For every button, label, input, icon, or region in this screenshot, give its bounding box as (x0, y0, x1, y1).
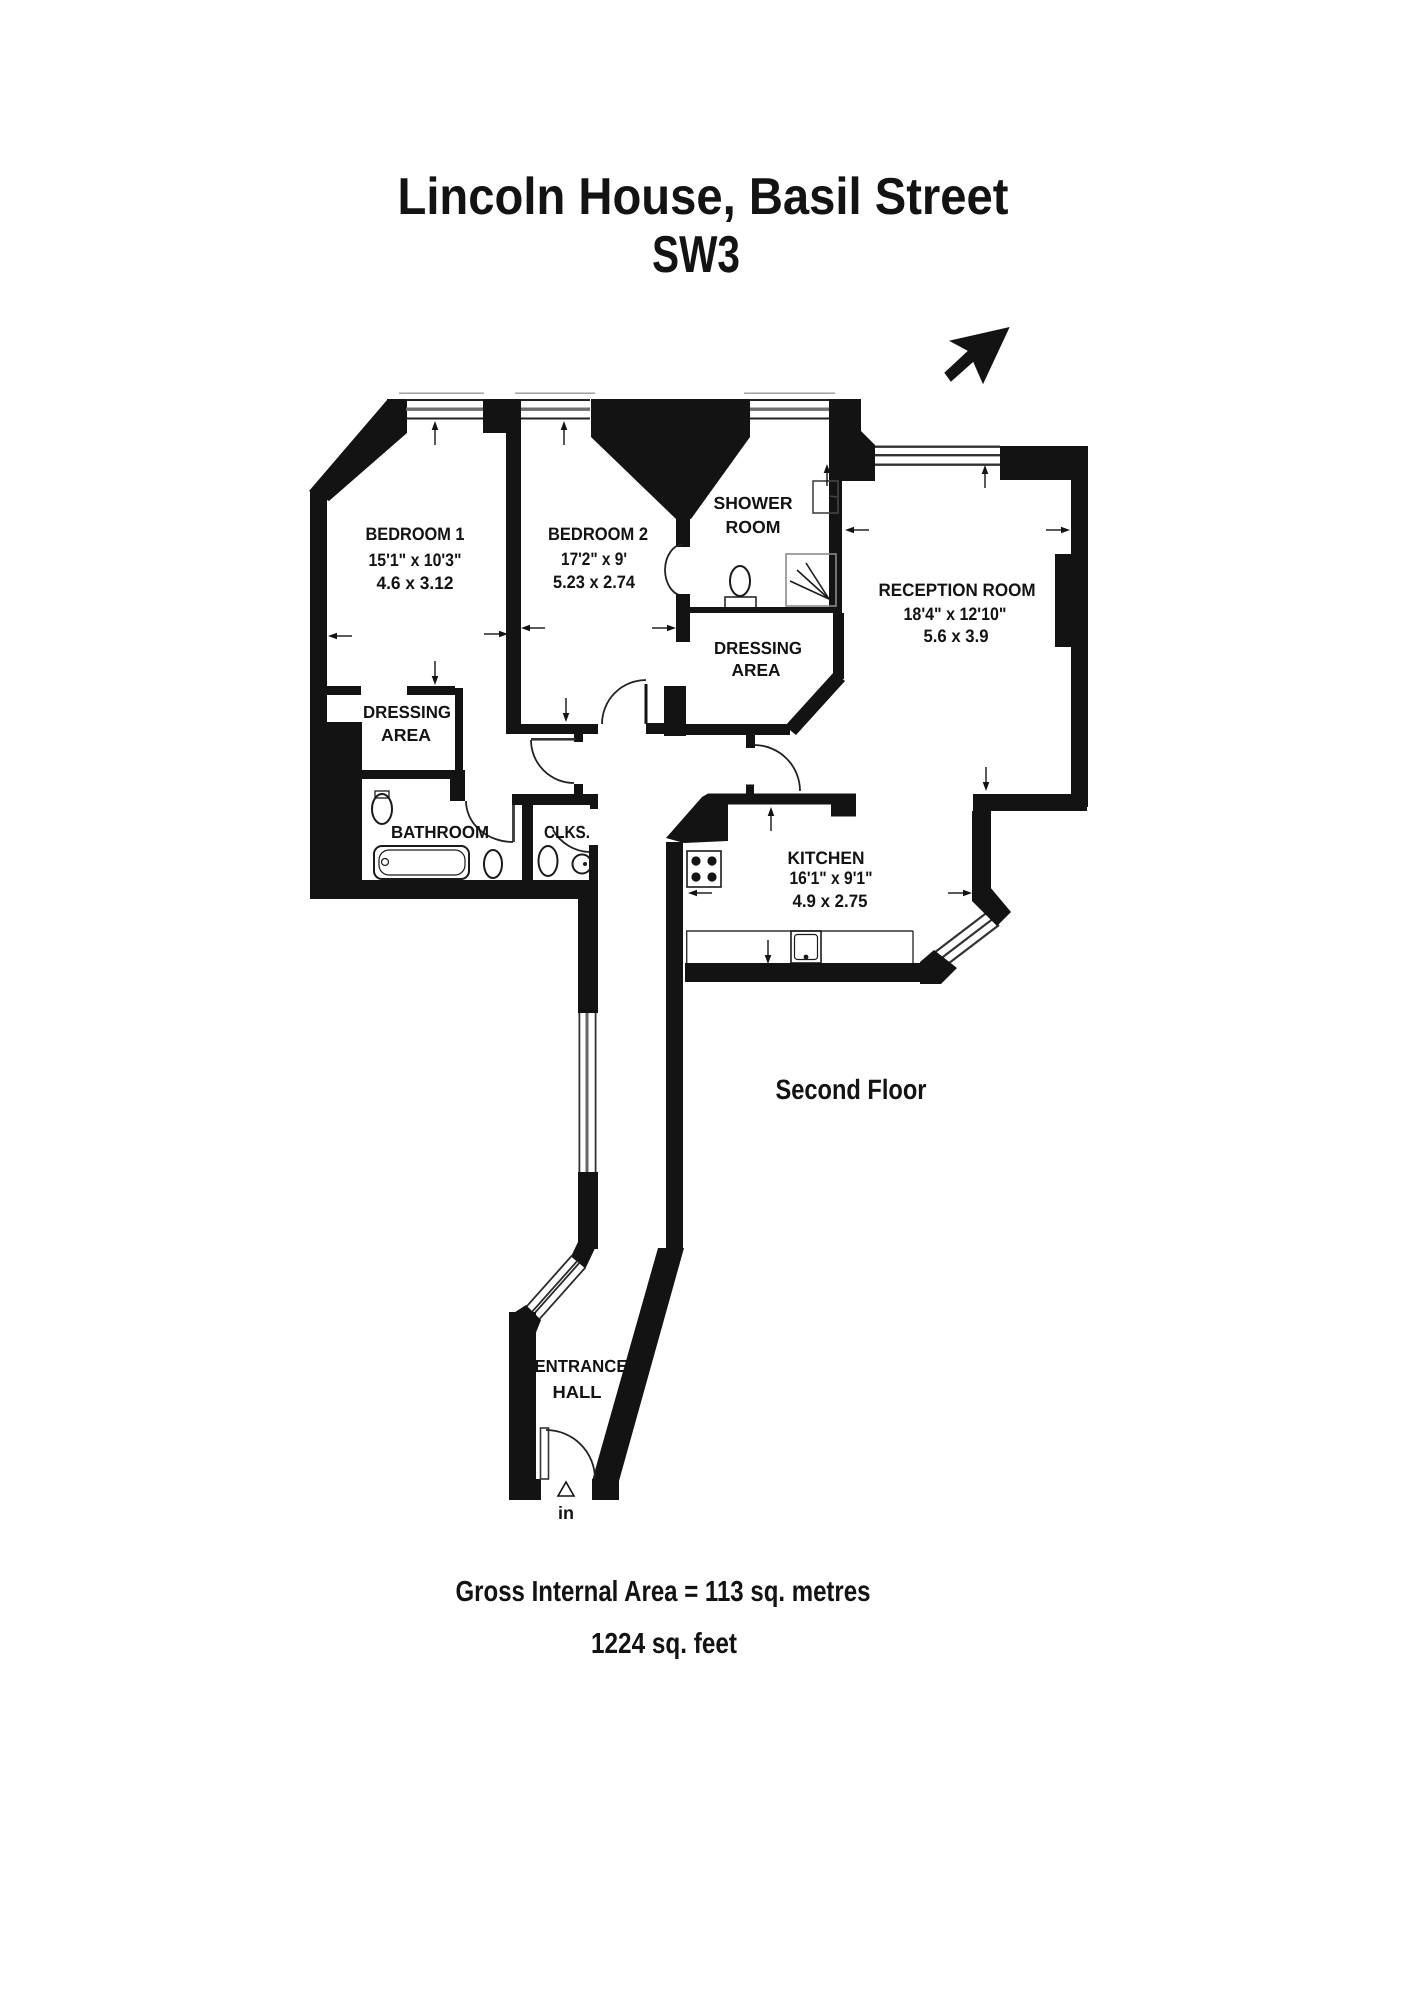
svg-text:SHOWER: SHOWER (714, 493, 793, 513)
svg-text:RECEPTION ROOM: RECEPTION ROOM (879, 580, 1036, 600)
svg-text:4.9 x 2.75: 4.9 x 2.75 (793, 891, 868, 911)
svg-text:ENTRANCE: ENTRANCE (535, 1356, 628, 1376)
svg-text:SW3: SW3 (652, 226, 740, 284)
svg-text:5.23 x 2.74: 5.23 x 2.74 (553, 572, 635, 592)
svg-text:17'2" x 9': 17'2" x 9' (561, 549, 627, 569)
svg-text:ROOM: ROOM (726, 517, 781, 537)
svg-text:1224 sq. feet: 1224 sq. feet (591, 1628, 737, 1660)
svg-text:4.6 x 3.12: 4.6 x 3.12 (377, 573, 454, 593)
svg-text:DRESSING: DRESSING (714, 638, 802, 658)
svg-text:AREA: AREA (381, 725, 431, 745)
svg-text:Second Floor: Second Floor (776, 1074, 927, 1105)
svg-text:BEDROOM 1: BEDROOM 1 (366, 524, 465, 544)
svg-text:18'4" x 12'10": 18'4" x 12'10" (904, 604, 1007, 624)
svg-text:BATHROOM: BATHROOM (391, 822, 489, 842)
svg-text:in: in (558, 1503, 574, 1523)
svg-text:AREA: AREA (732, 660, 781, 680)
svg-text:Lincoln House, Basil Street: Lincoln House, Basil Street (398, 168, 1009, 226)
svg-text:Gross Internal Area = 113 sq.: Gross Internal Area = 113 sq. metres (456, 1576, 871, 1608)
svg-text:5.6 x 3.9: 5.6 x 3.9 (924, 626, 989, 646)
svg-text:16'1" x 9'1": 16'1" x 9'1" (790, 868, 873, 888)
svg-text:HALL: HALL (553, 1382, 602, 1402)
svg-text:BEDROOM 2: BEDROOM 2 (548, 524, 648, 544)
svg-text:KITCHEN: KITCHEN (788, 848, 865, 868)
svg-text:DRESSING: DRESSING (363, 702, 451, 722)
svg-text:CLKS.: CLKS. (544, 822, 590, 842)
svg-text:15'1" x 10'3": 15'1" x 10'3" (369, 550, 462, 570)
